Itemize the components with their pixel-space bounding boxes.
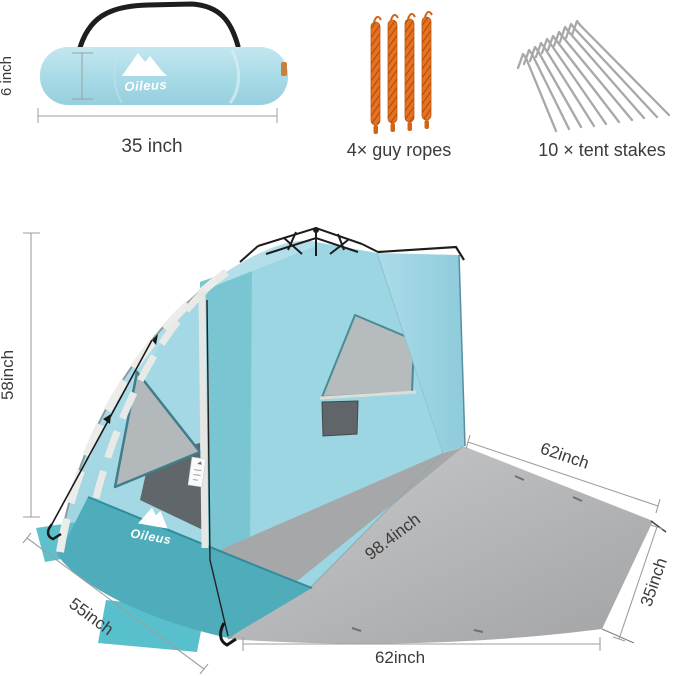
guy-ropes-label: 4× guy ropes [347, 140, 452, 160]
bag-handle [79, 4, 238, 51]
bag-width-dimension [38, 108, 277, 123]
bag-height-label: 6 inch [0, 56, 15, 96]
mat-corner-stake-bottom [602, 629, 634, 643]
guy-rope [422, 12, 432, 129]
front-pole-sleeve [202, 292, 205, 548]
guy-rope [371, 17, 381, 134]
carry-bag: Oileus [40, 4, 288, 105]
tent-stake [560, 27, 644, 118]
tent-height-dimension [23, 233, 40, 517]
bag-zipper-tab [281, 62, 287, 76]
tent-stakes [518, 21, 669, 131]
bag-logo-text: Oileus [124, 77, 167, 94]
guy-rope [388, 15, 398, 132]
tent-stakes-label: 10 × tent stakes [538, 140, 666, 160]
mat-top-label: 62inch [538, 439, 592, 473]
tent-inner-pocket [322, 401, 358, 436]
mat-side-label: 35inch [637, 555, 671, 609]
mat-corner-stake-right [651, 521, 666, 532]
guy-rope [405, 14, 415, 131]
guy-ropes [371, 12, 432, 134]
mat-bottom-label: 62inch [375, 648, 425, 667]
tent-stake [572, 21, 669, 115]
product-dimension-diagram: Oileus 6 inch 35 inch [0, 0, 679, 676]
bag-width-label: 35 inch [121, 136, 182, 157]
diagram-canvas: Oileus 6 inch 35 inch [0, 0, 679, 676]
tent-stake [536, 43, 594, 126]
tent-height-label: 58inch [0, 350, 17, 400]
